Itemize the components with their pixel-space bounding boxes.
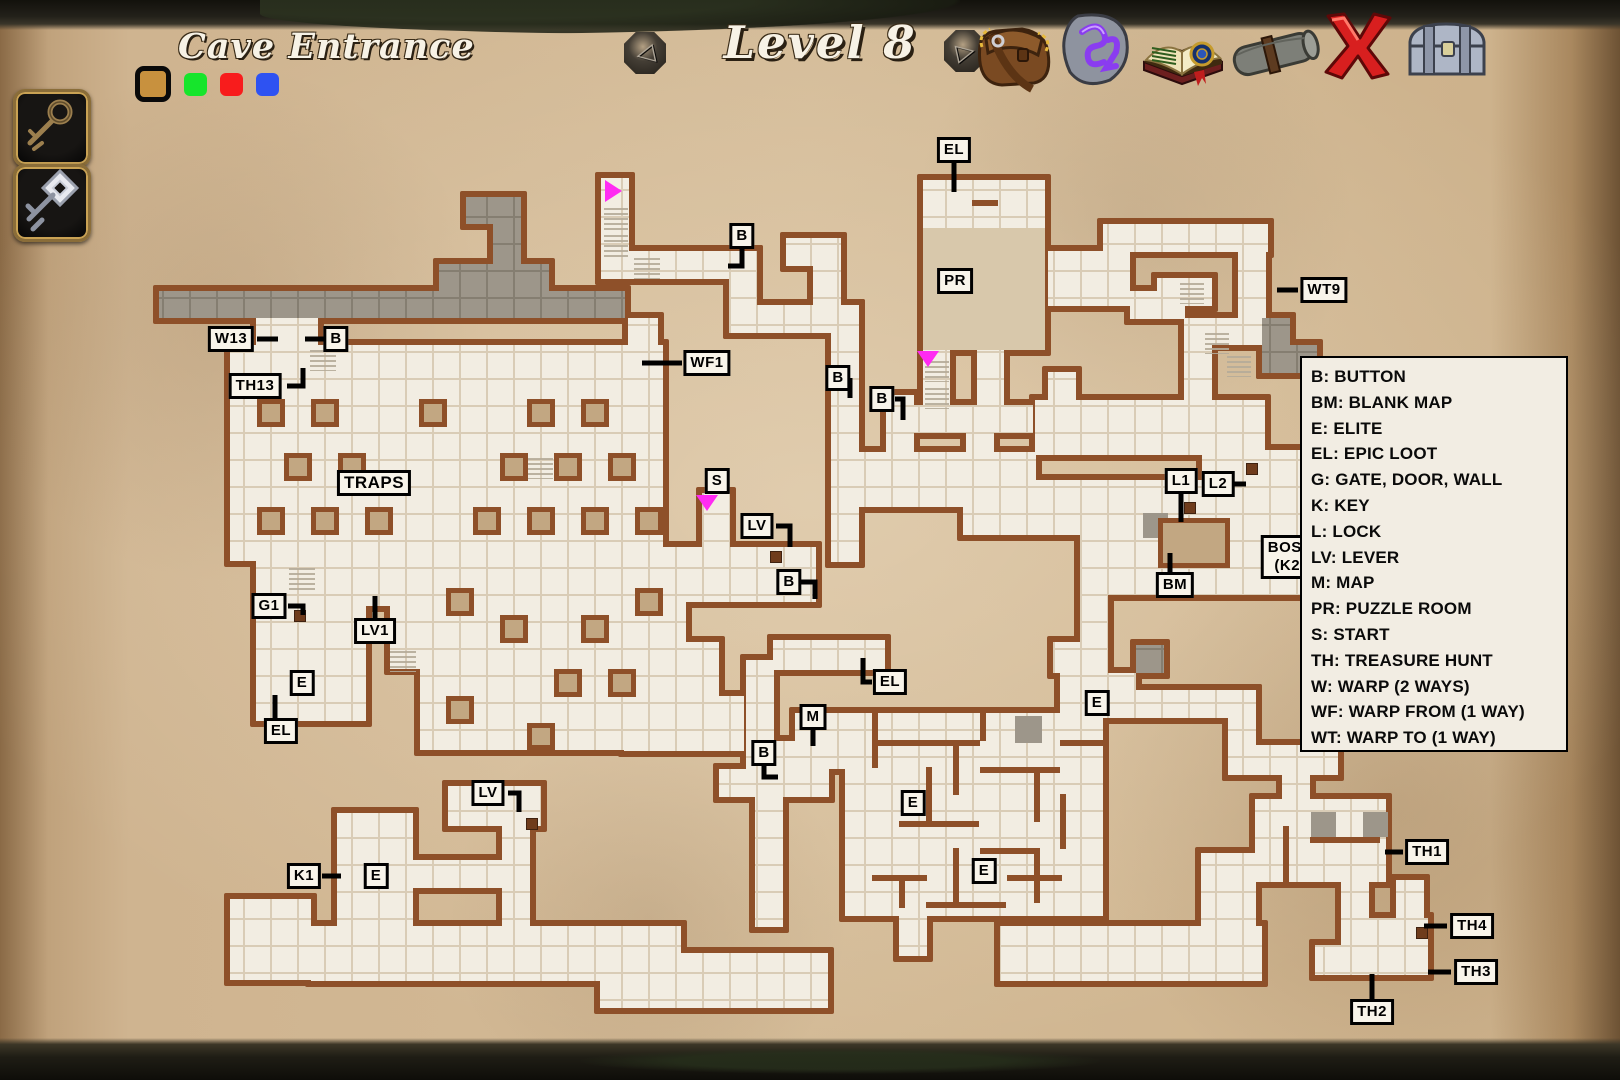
legend-entry: WT: WARP TO (1 WAY)	[1311, 725, 1566, 751]
map-title: Cave Entrance	[178, 26, 475, 67]
satchel-icon[interactable]	[962, 5, 1062, 93]
palette-swatch-tan[interactable]	[135, 66, 171, 102]
label-connector	[895, 399, 903, 420]
palette-swatch-red[interactable]	[220, 73, 243, 96]
label-connector	[288, 606, 303, 615]
bronze-key-icon	[16, 92, 82, 158]
bottom-rock-border	[0, 1038, 1620, 1080]
label-connector	[776, 526, 790, 547]
label-connector	[287, 368, 303, 386]
legend-entry: E: ELITE	[1311, 416, 1566, 442]
label-connector	[508, 793, 519, 812]
legend-entry: B: BUTTON	[1311, 364, 1566, 390]
key-slot-1[interactable]	[13, 89, 91, 167]
legend-entry: L: LOCK	[1311, 519, 1566, 545]
legend-entry: K: KEY	[1311, 493, 1566, 519]
legend-entry: W: WARP (2 WAYS)	[1311, 674, 1566, 700]
label-connector	[764, 765, 778, 777]
legend-entry: M: MAP	[1311, 570, 1566, 596]
previous-level-button[interactable]: ◁	[624, 32, 666, 74]
label-connector	[801, 582, 815, 599]
rune-stone-icon[interactable]	[1058, 10, 1134, 90]
legend-entry: PR: PUZZLE ROOM	[1311, 596, 1566, 622]
palette-swatch-blue[interactable]	[256, 73, 279, 96]
scroll-icon[interactable]	[1228, 22, 1320, 88]
legend-entry: TH: TREASURE HUNT	[1311, 648, 1566, 674]
back-arrow-icon: ◁	[633, 37, 657, 69]
silver-key-icon	[16, 167, 82, 233]
spellbook-icon[interactable]	[1136, 12, 1232, 88]
color-palette	[135, 66, 279, 102]
level-title: Level 8	[700, 16, 940, 69]
delete-x-icon[interactable]	[1318, 10, 1398, 82]
map-legend: B: BUTTONBM: BLANK MAPE: ELITEEL: EPIC L…	[1300, 356, 1568, 752]
label-connector	[728, 248, 742, 266]
key-slot-2[interactable]	[13, 164, 91, 242]
palette-swatch-green[interactable]	[184, 73, 207, 96]
legend-entry: S: START	[1311, 622, 1566, 648]
legend-entry: EL: EPIC LOOT	[1311, 441, 1566, 467]
legend-entry: BM: BLANK MAP	[1311, 390, 1566, 416]
chest-icon[interactable]	[1400, 16, 1492, 86]
legend-entry: WF: WARP FROM (1 WAY)	[1311, 699, 1566, 725]
legend-entry: G: GATE, DOOR, WALL	[1311, 467, 1566, 493]
map-screen: W13BTH13BWF1ELPRBBSLVBTRAPSG1LV1EELMELBL…	[0, 0, 1620, 1080]
label-connector	[863, 658, 872, 682]
legend-entry: LV: LEVER	[1311, 545, 1566, 571]
